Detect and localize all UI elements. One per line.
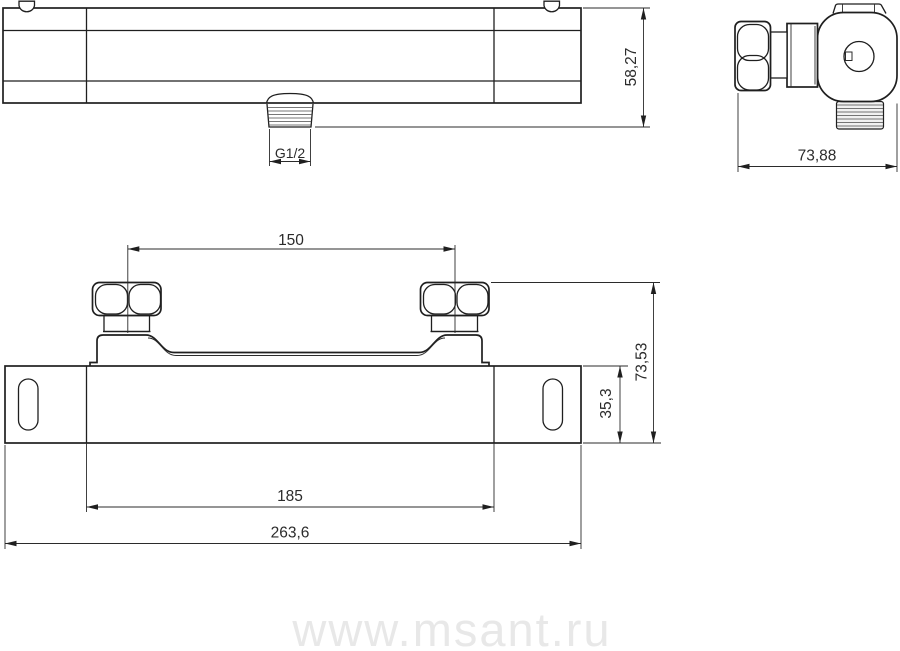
dim-inlet-spacing-label: 150 bbox=[278, 232, 304, 249]
watermark-text: www.msant.ru bbox=[291, 603, 611, 651]
mounting-slot-left bbox=[19, 379, 39, 430]
arrowhead bbox=[886, 164, 898, 169]
arrowhead bbox=[5, 541, 17, 546]
arrowhead bbox=[444, 246, 456, 251]
arrowhead bbox=[651, 432, 656, 444]
dim-outlet-thread: G1/2 bbox=[270, 129, 311, 166]
dim-overall-height-label: 73,53 bbox=[634, 343, 651, 382]
dim-side-depth-label: 73,88 bbox=[798, 148, 837, 165]
arrowhead bbox=[87, 504, 99, 509]
technical-drawing-canvas: G1/2 58,27 bbox=[0, 0, 900, 651]
connector-stem bbox=[771, 32, 788, 78]
arrowhead bbox=[641, 116, 646, 128]
inlet-nut-left bbox=[93, 283, 162, 332]
technical-drawing-page: G1/2 58,27 bbox=[0, 0, 900, 651]
right-cap bbox=[544, 1, 560, 12]
knob-notch bbox=[846, 52, 853, 61]
dim-body-height: 35,3 bbox=[583, 366, 628, 443]
connector-block bbox=[787, 24, 818, 88]
dim-outlet-thread-label: G1/2 bbox=[275, 145, 306, 161]
arrowhead bbox=[617, 432, 622, 444]
outlet-thread bbox=[267, 104, 313, 127]
arrowhead bbox=[617, 366, 622, 378]
outlet-dome bbox=[267, 94, 314, 104]
left-cap bbox=[19, 1, 35, 12]
arrowhead bbox=[738, 164, 750, 169]
mixer-body-profile bbox=[90, 335, 489, 366]
dim-body-height-label: 35,3 bbox=[598, 388, 615, 418]
dim-overall-width-label: 263,6 bbox=[271, 525, 310, 542]
arrowhead bbox=[570, 541, 582, 546]
arrowhead bbox=[651, 283, 656, 295]
mounting-view: 150 73,53 35,3 185 bbox=[5, 232, 661, 549]
arrowhead bbox=[641, 8, 646, 20]
dim-front-height: 58,27 bbox=[315, 8, 650, 127]
arrowhead bbox=[128, 246, 140, 251]
dim-front-height-label: 58,27 bbox=[623, 48, 640, 87]
side-thread bbox=[837, 102, 884, 130]
dim-overall-height: 73,53 bbox=[491, 283, 661, 444]
mounting-slot-right bbox=[543, 379, 563, 430]
dim-inlet-spacing: 150 bbox=[128, 232, 455, 333]
arrowhead bbox=[483, 504, 495, 509]
side-view: 73,88 bbox=[735, 4, 897, 172]
dim-inner-width: 185 bbox=[87, 443, 495, 512]
dim-inner-width-label: 185 bbox=[277, 488, 303, 505]
hex-nut bbox=[735, 22, 771, 91]
front-view: G1/2 58,27 bbox=[3, 1, 650, 166]
